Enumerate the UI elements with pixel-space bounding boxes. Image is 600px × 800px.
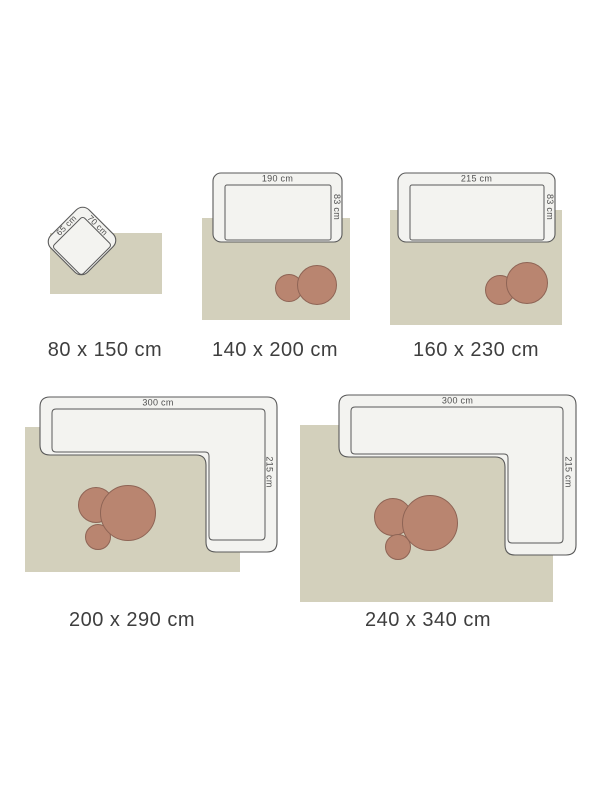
sofa-depth-label: 83 cm: [545, 194, 555, 220]
sofa-illustration: 190 cm 83 cm: [210, 168, 346, 246]
corner-sofa-illustration: 300 cm 215 cm: [336, 390, 581, 558]
size-label-160x230: 160 x 230 cm: [376, 338, 576, 362]
size-label-240x340: 240 x 340 cm: [328, 608, 528, 632]
sofa-illustration: 215 cm 83 cm: [395, 168, 560, 246]
armchair-illustration: 65 cm 70 cm: [38, 197, 126, 285]
size-label-140x200: 140 x 200 cm: [175, 338, 375, 362]
corner-sofa-depth-label: 215 cm: [265, 456, 275, 487]
corner-sofa-width-label: 300 cm: [442, 395, 473, 405]
sofa-width-label: 215 cm: [461, 173, 492, 183]
sofa-depth-label: 83 cm: [332, 194, 342, 220]
corner-sofa-body: [40, 397, 277, 552]
corner-sofa-depth-label: 215 cm: [564, 456, 574, 487]
size-label-200x290: 200 x 290 cm: [32, 608, 232, 632]
rug-size-guide: 65 cm 70 cm 80 x 150 cm 190 cm 83 cm 140…: [0, 0, 600, 800]
corner-sofa-width-label: 300 cm: [142, 397, 173, 407]
corner-sofa-illustration: 300 cm 215 cm: [35, 392, 283, 558]
rug-pattern-circle: [506, 262, 548, 304]
corner-sofa-body: [339, 395, 576, 555]
rug-pattern-circle: [297, 265, 337, 305]
armchair-body: [45, 204, 120, 279]
sofa-width-label: 190 cm: [262, 173, 293, 183]
